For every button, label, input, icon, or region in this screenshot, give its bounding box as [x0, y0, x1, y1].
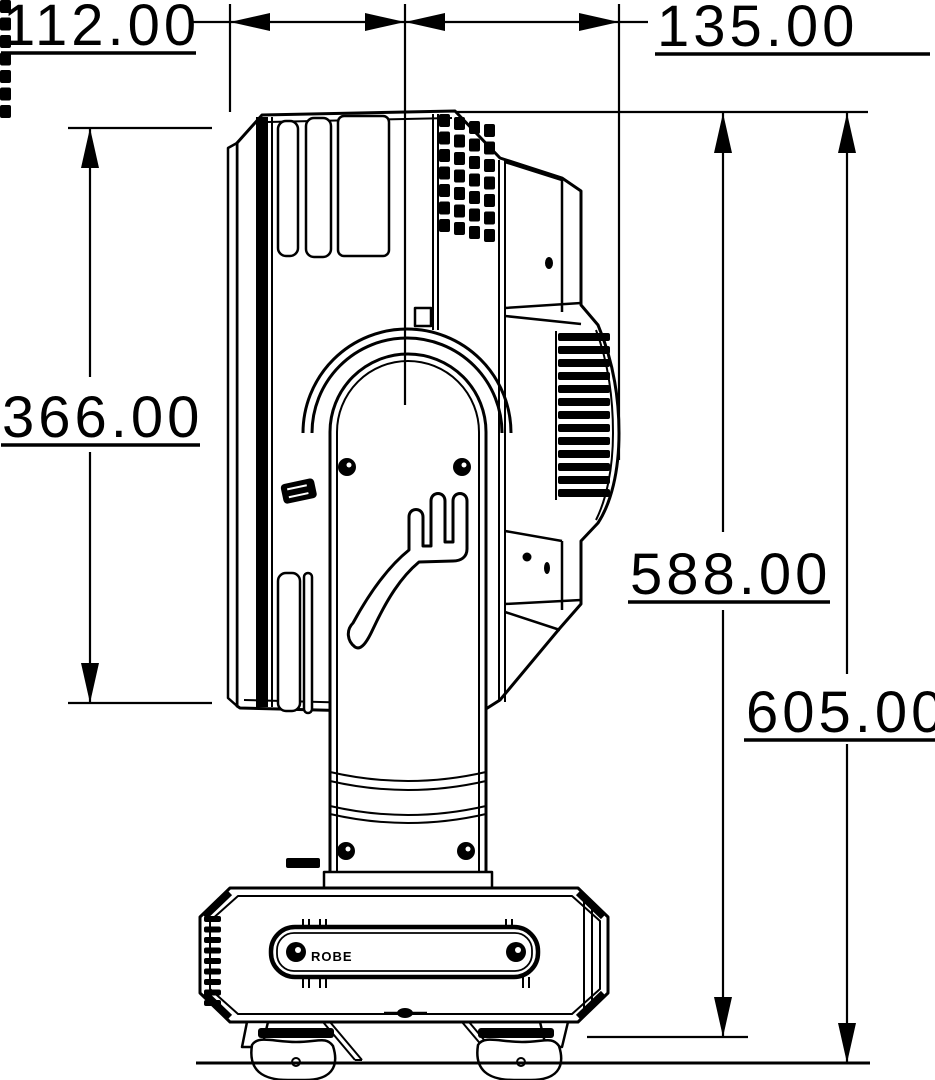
base-handle[interactable]: ROBE: [271, 927, 538, 977]
dim-label-front-depth: 135.00: [657, 0, 858, 59]
fixture-side-view-svg: ROBE: [0, 0, 935, 1080]
right-foot-pad: [477, 1040, 561, 1080]
rear-bottom-vent-slots: [278, 573, 312, 713]
dim-label-head-height: 366.00: [2, 385, 203, 450]
head-rear-plate: [228, 143, 237, 706]
yoke-arm-outline: [330, 354, 486, 884]
dimension-drawing: ROBE: [0, 0, 935, 1080]
dim-label-height-to-base: 588.00: [630, 542, 831, 607]
lower-box-screw: [523, 553, 532, 562]
dim-label-rear-depth: 112.00: [3, 0, 200, 58]
upper-box-screw: [545, 257, 553, 269]
front-top-vent-col1: [439, 114, 450, 232]
rim-notch: [415, 308, 431, 326]
fixture-drawing: ROBE: [0, 0, 870, 1080]
pan-lock-pin: [286, 858, 320, 868]
rear-heatsink-bar: [256, 117, 268, 707]
right-foot: [462, 1022, 568, 1080]
brand-logo: ROBE: [311, 949, 353, 964]
left-foot: [242, 1022, 362, 1080]
base: ROBE: [200, 888, 608, 1022]
dim-label-overall-height: 605.00: [746, 680, 935, 745]
lower-box-slot: [544, 562, 550, 574]
